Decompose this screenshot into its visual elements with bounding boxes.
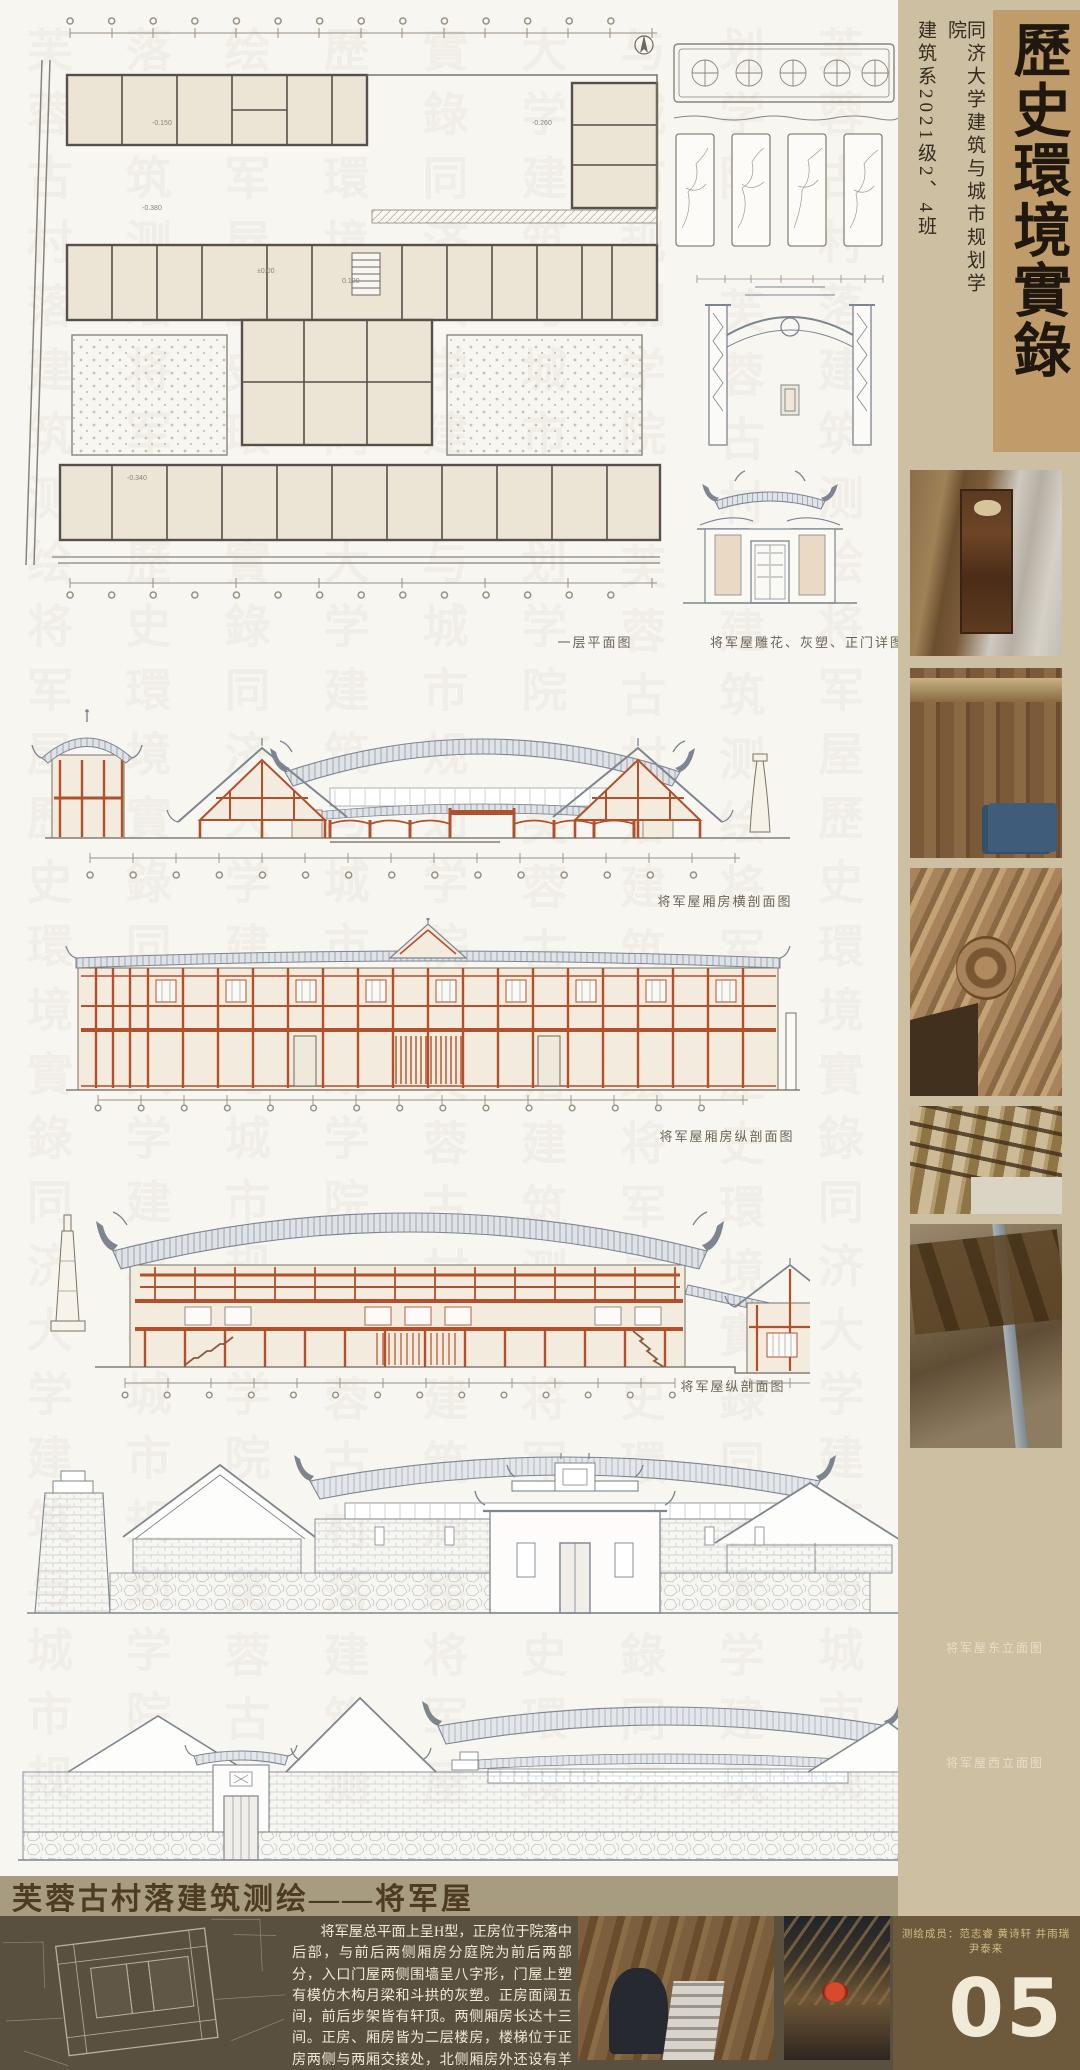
- main-longitudinal-section-drawing: [35, 1155, 810, 1403]
- cross-section-drawing: [30, 660, 805, 890]
- carved-panels: [676, 134, 882, 246]
- chimney: [51, 1215, 85, 1331]
- footer-banner-title: 芙蓉古村落建筑测绘——将军屋: [0, 1874, 474, 1918]
- credits-line: 测绘成员：范志睿 黄诗轩 井雨瑞 尹泰来: [898, 1926, 1074, 1956]
- north-compass-icon: [635, 35, 653, 54]
- west-elevation-drawing: [8, 1660, 988, 1872]
- right-annex: [725, 1258, 810, 1373]
- carved-wood-shrine-photo: [910, 470, 1062, 656]
- site-plan-sketch: [0, 1916, 288, 2070]
- plan-caption: 一层平面图: [520, 632, 670, 651]
- svg-text:-0.260: -0.260: [532, 120, 552, 127]
- west-elevation-caption: 将军屋西立面图: [928, 1754, 1062, 1771]
- cross-section-caption: 将军屋厢房横剖面图: [630, 891, 820, 910]
- plan-rooms: [60, 75, 660, 540]
- poster-board: 芙蓉古村落建筑测绘将军屋歷史環境實錄同济大学建筑与城市规划学院 芙蓉古村落建筑测…: [0, 0, 1080, 2070]
- upper-windows: [156, 980, 736, 1002]
- school-name: 同济大学建筑与城市规划学院: [946, 20, 984, 300]
- description-paragraph: 将军屋总平面上呈H型，正房位于院落中后部，与前后两侧厢房分庭院为前后两部分，入口…: [292, 1922, 572, 2070]
- east-elevation-drawing: [15, 1415, 990, 1630]
- roof-truss-photo: [910, 1106, 1062, 1214]
- svg-text:0.100: 0.100: [342, 278, 360, 285]
- main-gate-elevation-drawing: [675, 463, 865, 613]
- roof-corner-lantern-photo: [784, 1916, 890, 2060]
- center-gable: [390, 918, 466, 958]
- svg-text:-0.340: -0.340: [127, 475, 147, 482]
- left-wing-section: [32, 709, 142, 838]
- masthead-title: 歷史環境實錄: [1002, 10, 1072, 452]
- door-head-bracket-detail-drawing: [685, 265, 895, 460]
- wing-longitudinal-section-drawing: [38, 918, 813, 1113]
- school-vertical-text: 同济大学建筑与城市规划学院 建筑系2021级2、4班: [912, 20, 984, 300]
- svg-text:-0.150: -0.150: [152, 120, 172, 127]
- carved-beam-detail-photo: [910, 868, 1062, 1096]
- beams-and-pipes-photo: [910, 1224, 1062, 1448]
- class-name: 建筑系2021级2、4班: [916, 20, 935, 300]
- surveyor-on-ladder-photo: [578, 1916, 774, 2060]
- svg-text:±0.00: ±0.00: [257, 268, 275, 275]
- timber-wall-lattice-photo: [910, 668, 1062, 858]
- wing-long-section-caption: 将军屋厢房纵剖面图: [632, 1126, 822, 1145]
- floor-plan-drawing: -0.150 -0.380 ±0.00 0.100 -0.260 -0.340: [12, 5, 667, 605]
- page-number: 05: [938, 1962, 1074, 2055]
- detail-caption: 将军屋雕花、灰塑、正门详图: [700, 632, 915, 651]
- masthead-title-box: 歷史環境實錄: [993, 10, 1080, 452]
- footer-banner: 芙蓉古村落建筑测绘——将军屋: [0, 1876, 898, 1916]
- lattice-and-panel-details-drawing: [670, 38, 902, 260]
- svg-text:-0.380: -0.380: [142, 205, 162, 212]
- long-section-caption: 将军屋纵剖面图: [648, 1376, 818, 1395]
- east-elevation-caption: 将军屋东立面图: [928, 1639, 1062, 1656]
